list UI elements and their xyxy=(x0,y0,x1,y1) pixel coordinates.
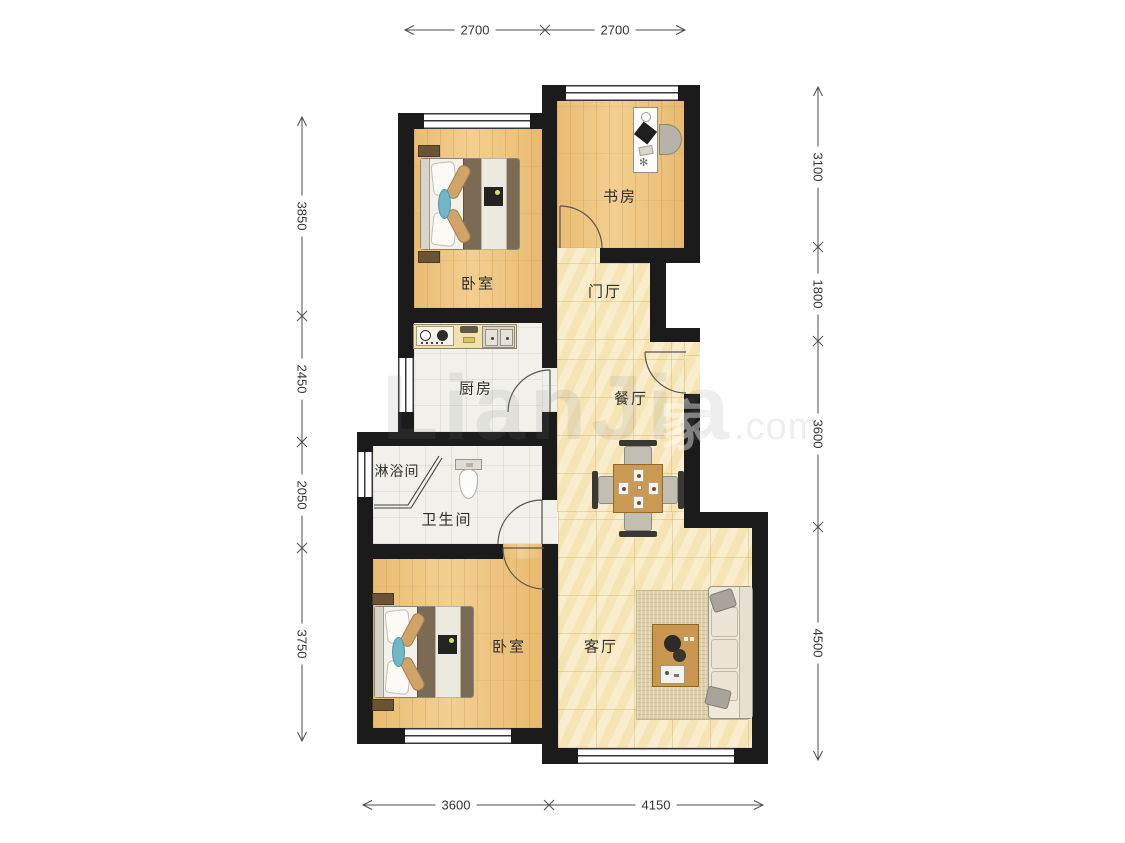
dim-left-4: 3750 xyxy=(295,624,310,665)
room-label-kitchen: 厨房 xyxy=(459,378,493,399)
door-bathroom xyxy=(498,500,542,544)
dim-bottom-2: 4150 xyxy=(636,798,677,813)
floor-plan: ✻ xyxy=(0,0,1125,843)
room-label-shower: 淋浴间 xyxy=(375,461,420,481)
door-study xyxy=(560,206,602,248)
room-label-study: 书房 xyxy=(603,186,637,207)
dim-left-2: 2450 xyxy=(295,359,310,400)
door-kitchen xyxy=(508,370,550,412)
plan-linework xyxy=(0,0,1125,843)
dim-top-2: 2700 xyxy=(595,23,636,38)
dim-right-2: 1800 xyxy=(811,274,826,315)
dim-right-1: 3100 xyxy=(811,147,826,188)
dimension-lines xyxy=(297,25,823,810)
dim-right-4: 4500 xyxy=(811,623,826,664)
room-label-bathroom: 卫生间 xyxy=(421,509,472,530)
room-label-bedroom-bottom: 卧室 xyxy=(492,636,526,657)
room-label-living: 客厅 xyxy=(584,636,618,657)
dim-right-3: 3600 xyxy=(811,414,826,455)
room-label-dining: 餐厅 xyxy=(614,388,648,409)
dim-left-3: 2050 xyxy=(295,475,310,516)
dim-left-1: 3850 xyxy=(295,196,310,237)
dim-top-1: 2700 xyxy=(455,23,496,38)
room-label-bedroom-top: 卧室 xyxy=(461,273,495,294)
room-label-entry-hall: 门厅 xyxy=(588,281,622,302)
dim-bottom-1: 3600 xyxy=(436,798,477,813)
door-bedroom-bottom xyxy=(503,548,544,589)
door-entrance xyxy=(645,352,686,393)
